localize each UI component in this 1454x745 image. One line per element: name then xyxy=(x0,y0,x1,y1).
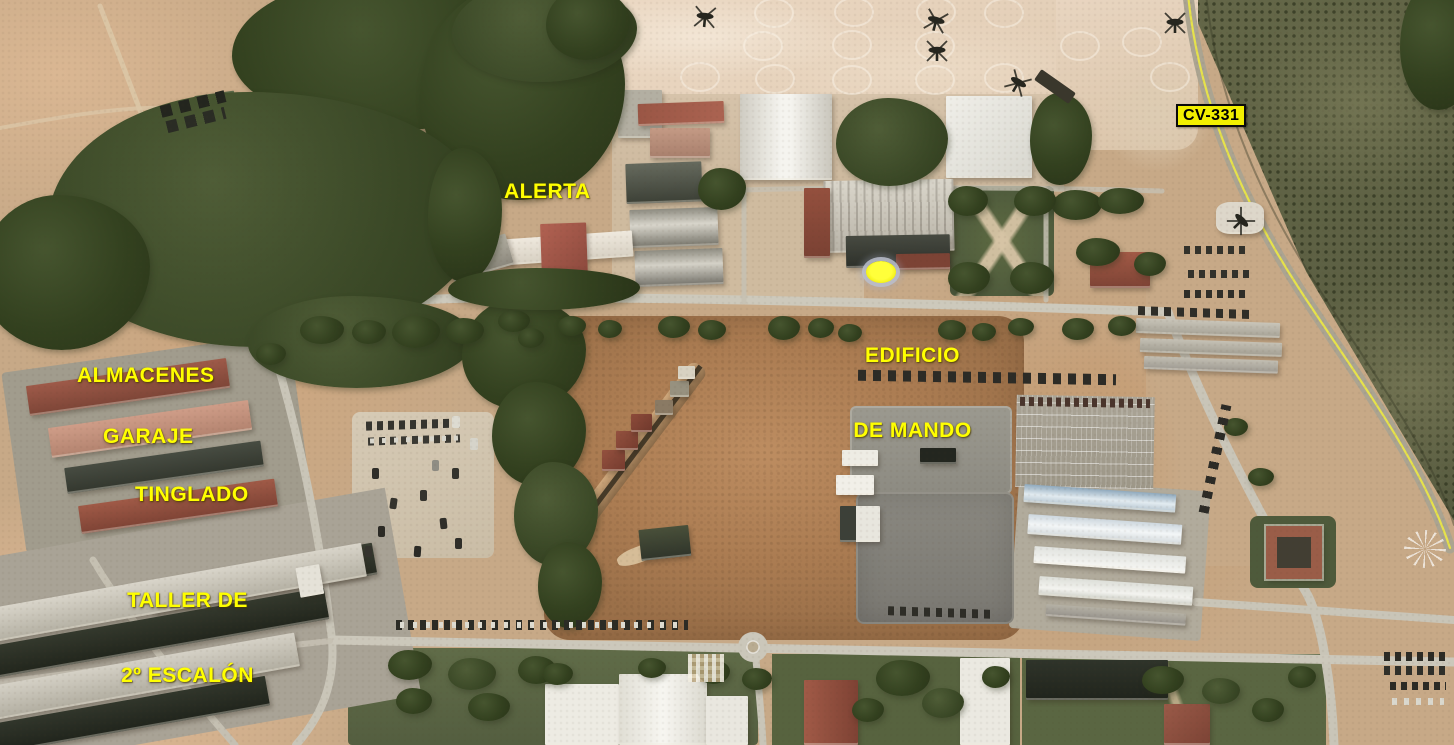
label-alerta: ALERTA xyxy=(504,179,591,204)
checker-pavement xyxy=(688,654,724,682)
building xyxy=(840,506,880,542)
tree-canopy xyxy=(448,268,640,310)
label-taller-line1: TALLER DE xyxy=(95,588,280,613)
tree-canopy xyxy=(448,658,496,690)
helipad-circle xyxy=(834,0,874,27)
parked-vehicles-row xyxy=(400,622,684,628)
tree-canopy xyxy=(598,320,622,338)
helipad-circle xyxy=(1150,62,1190,92)
white-building xyxy=(706,696,748,745)
tree-canopy xyxy=(396,688,432,714)
label-tinglado: TINGLADO xyxy=(135,482,249,507)
tree-canopy xyxy=(1052,190,1102,220)
bunker xyxy=(670,381,689,397)
tree-canopy xyxy=(876,660,930,696)
helicopter-icon xyxy=(1160,8,1190,38)
brick-tower xyxy=(804,188,830,258)
parked-vehicles-row xyxy=(1188,270,1254,278)
tree-canopy xyxy=(852,698,884,722)
vehicle xyxy=(365,546,372,557)
tree-canopy xyxy=(1098,188,1144,214)
helipad-circle xyxy=(755,64,795,94)
bunker xyxy=(631,414,652,432)
warehouse xyxy=(1140,338,1282,357)
parked-vehicles-row xyxy=(366,418,462,430)
building xyxy=(295,564,324,598)
white-roof-barracks xyxy=(1027,514,1182,545)
tree-canopy xyxy=(1400,0,1454,110)
tree-canopy xyxy=(742,668,772,690)
helipad-circle xyxy=(832,65,872,95)
helipad-circle xyxy=(754,0,794,28)
vehicle xyxy=(432,460,439,471)
helipad-circle xyxy=(915,65,955,95)
tree-canopy xyxy=(698,168,746,210)
tree-canopy xyxy=(922,688,964,718)
tree-canopy xyxy=(948,186,988,216)
white-building xyxy=(946,96,1032,178)
vehicle xyxy=(470,438,478,450)
tree-canopy xyxy=(468,693,510,721)
vehicle xyxy=(452,416,460,428)
label-garaje: GARAJE xyxy=(103,424,194,449)
tree-canopy xyxy=(1030,93,1092,185)
tree-canopy xyxy=(1108,316,1136,336)
parked-vehicles-row xyxy=(1199,404,1232,514)
helipad-circle xyxy=(984,0,1024,28)
vehicle xyxy=(414,546,422,557)
tree-canopy xyxy=(1010,262,1054,294)
white-roof-barracks xyxy=(1033,546,1186,574)
tree-canopy xyxy=(543,663,573,685)
parked-vehicles-row xyxy=(888,606,992,619)
tree-canopy xyxy=(1062,318,1094,340)
parked-vehicles-row xyxy=(1384,652,1446,661)
tree-canopy xyxy=(1252,698,1284,722)
white-gable-building xyxy=(619,674,707,745)
tree-canopy xyxy=(1008,318,1034,336)
vehicle xyxy=(420,490,427,501)
tree-canopy xyxy=(388,650,432,680)
tree-canopy xyxy=(1248,468,1274,486)
label-edificio-line2: DE MANDO xyxy=(820,418,1005,443)
bunker xyxy=(655,400,673,415)
label-edificio-de-mando: EDIFICIO DE MANDO xyxy=(820,293,1005,493)
parked-vehicles-row xyxy=(1390,682,1446,690)
label-taller: TALLER DE 2º ESCALÓN xyxy=(95,538,280,738)
red-roof-building xyxy=(804,680,858,745)
vehicle xyxy=(372,468,379,479)
parked-vehicles-row xyxy=(1184,290,1246,298)
helicopter-icon xyxy=(922,36,952,66)
shed xyxy=(638,525,691,561)
parked-vehicles-row xyxy=(1020,397,1150,408)
white-gable-building xyxy=(740,94,832,180)
bunker xyxy=(602,450,625,471)
road-sign-cv331: CV-331 xyxy=(1176,104,1246,127)
tree-canopy xyxy=(768,316,800,340)
label-almacenes: ALMACENES xyxy=(77,363,215,388)
warehouse xyxy=(1144,356,1278,374)
tree-canopy xyxy=(1288,666,1316,688)
vehicle xyxy=(389,498,397,510)
tree-canopy xyxy=(948,262,990,294)
edificio-de-mando-marker xyxy=(866,261,896,283)
curved-roof-hangar xyxy=(629,207,718,248)
satellite-map: ALERTA EDIFICIO DE MANDO ALMACENES GARAJ… xyxy=(0,0,1454,745)
dark-gable-hangar xyxy=(625,161,702,204)
vehicle xyxy=(452,468,459,479)
tree-canopy xyxy=(1014,186,1056,216)
vehicle xyxy=(378,526,385,537)
parked-vehicles-row xyxy=(1392,698,1444,705)
building xyxy=(896,253,950,270)
label-taller-line2: 2º ESCALÓN xyxy=(95,663,280,688)
vehicle xyxy=(455,538,462,549)
red-roof-building xyxy=(638,101,725,126)
tree-canopy xyxy=(538,542,602,628)
white-roof-barracks xyxy=(1038,576,1193,606)
red-roof-building xyxy=(1164,704,1210,745)
tree-canopy xyxy=(658,316,690,338)
helicopter-icon xyxy=(689,1,722,34)
tree-canopy xyxy=(1142,666,1184,694)
sunburst-pavement-mark xyxy=(1404,530,1446,568)
helipad-circle xyxy=(680,62,720,92)
label-edificio-line1: EDIFICIO xyxy=(820,343,1005,368)
white-building xyxy=(545,684,619,745)
parked-vehicles-row xyxy=(1138,306,1250,319)
building xyxy=(1046,604,1186,626)
helipad-circle xyxy=(1122,27,1162,57)
curved-roof-hangar xyxy=(634,248,723,287)
bunker xyxy=(616,431,638,450)
building xyxy=(650,128,710,158)
vehicle xyxy=(439,518,447,530)
helipad-circle xyxy=(832,30,872,60)
tree-canopy xyxy=(836,98,948,186)
tree-canopy xyxy=(698,320,726,340)
parked-vehicles-row xyxy=(1184,246,1246,254)
helipad-circle xyxy=(1060,31,1100,61)
parked-vehicles-row xyxy=(1384,666,1446,675)
blue-roof-barracks xyxy=(1023,484,1176,513)
tree-canopy xyxy=(1134,252,1166,276)
building xyxy=(678,366,695,379)
courtyard-building xyxy=(1266,526,1322,579)
tree-canopy xyxy=(1202,678,1240,704)
warehouse xyxy=(1136,318,1280,338)
helipad-circle xyxy=(743,31,783,61)
